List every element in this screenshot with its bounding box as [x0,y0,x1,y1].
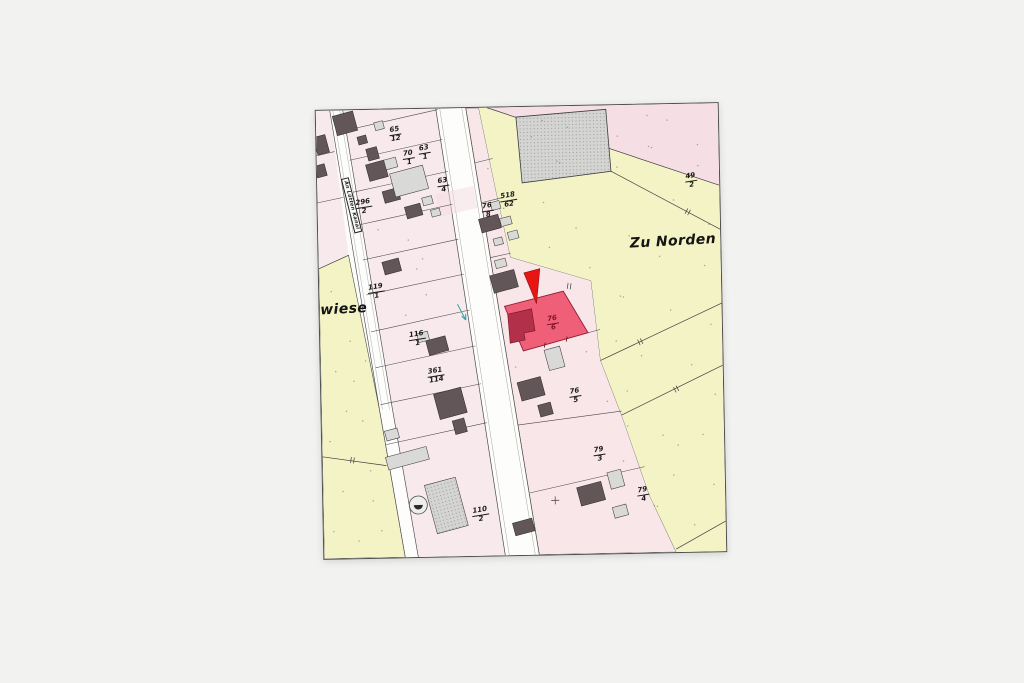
parcel-label-110-2: 1102 [471,506,490,525]
parcel-label-63-4: 634 [436,177,450,195]
parcel-label-49-2: 492 [684,172,698,190]
parcel-label-116-1: 1161 [408,330,427,349]
cadastral-map-sheet: An Lütten Kanal Zu Norden v nwiese 6512 … [315,102,728,560]
parcel-label-119-1: 1191 [367,283,386,302]
parcel-label-76-6-highlighted: 766 [546,315,560,333]
parcel-label-79-4: 794 [636,486,650,504]
hatched-area [516,109,611,183]
parcel-label-63-1: 631 [417,144,431,162]
parcel-label-361-114: 361114 [426,366,445,385]
page: { "page": { "background_color": "#f2f2f1… [0,0,1024,683]
parcel-label-79-3: 793 [592,446,606,464]
parcel-label-76-8: 768 [481,202,495,220]
parcel-label-76-5: 765 [568,387,582,405]
area-label-nwiese: nwiese [315,300,368,319]
map-graphic [316,103,727,559]
parcel-label-70-1: 701 [402,149,416,167]
parcel-label-518-62: 51862 [499,191,518,210]
parcel-label-65-12: 6512 [388,126,402,144]
